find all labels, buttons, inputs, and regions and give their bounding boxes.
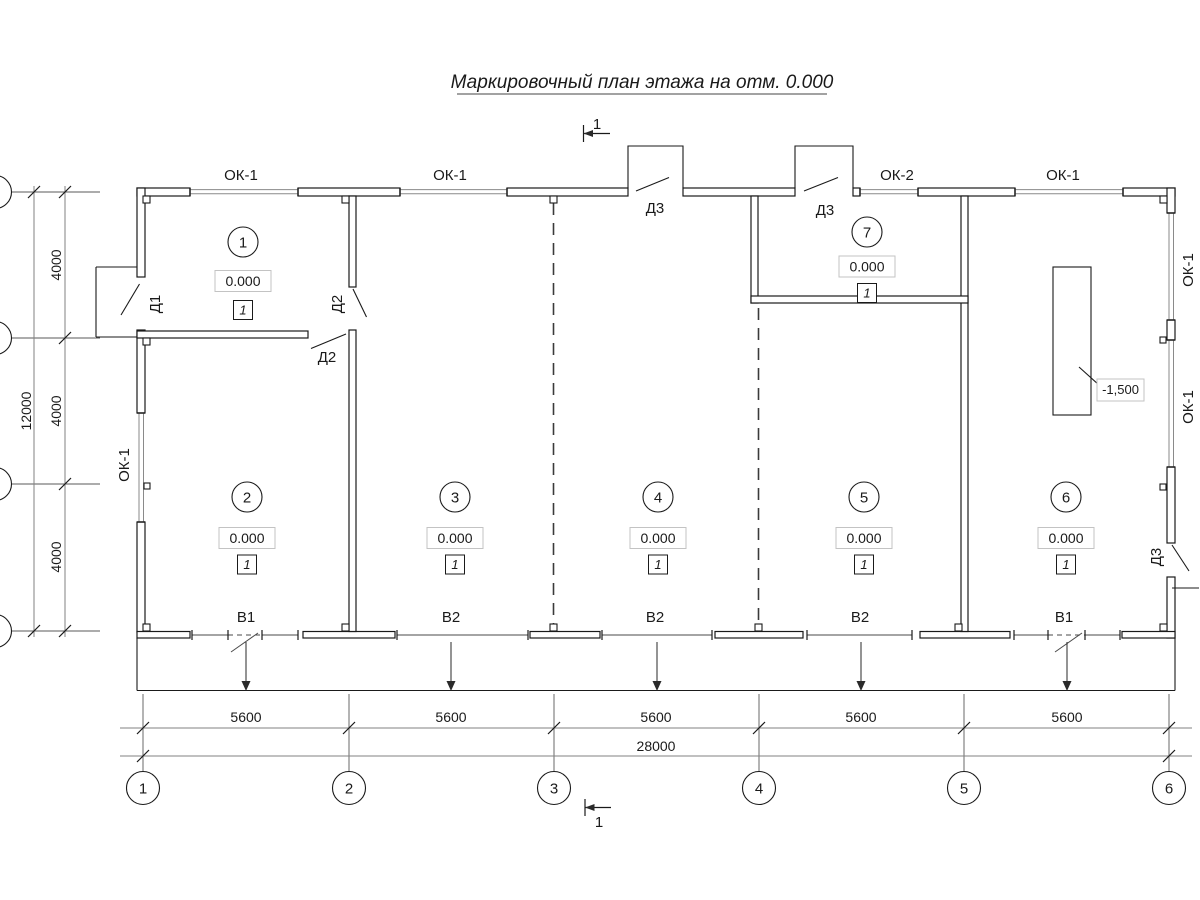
room-number: 4 — [654, 490, 662, 507]
room-elevation: 0.000 — [225, 273, 260, 289]
room-number: 5 — [860, 490, 868, 507]
window-label-ok1-right1: ОК-1 — [1180, 253, 1197, 287]
window-label-ok1-top1: ОК-1 — [224, 167, 258, 184]
bottom-pier — [137, 632, 190, 639]
wall-room1-room2 — [137, 331, 308, 338]
section-number-bottom: 1 — [595, 814, 603, 831]
room-finish-type: 1 — [451, 557, 458, 572]
top-wall-segment — [507, 188, 628, 196]
right-wall-segment — [1167, 320, 1175, 340]
room-number: 1 — [239, 235, 247, 252]
room-finish-type: 1 — [243, 557, 250, 572]
room-elevation: 0.000 — [640, 530, 675, 546]
window-ok2-top — [860, 188, 918, 196]
drawing-title: Маркировочный план этажа на отм. 0.000 — [451, 72, 834, 93]
bottom-pier — [1122, 632, 1175, 639]
row-bubble-d — [0, 615, 12, 648]
room-finish-type: 1 — [863, 286, 870, 301]
door-d2-upper-swing — [353, 289, 367, 317]
row-bubble-c — [0, 468, 12, 501]
room-number: 2 — [243, 490, 251, 507]
column-mark — [342, 624, 349, 631]
window-label-ok2-top: ОК-2 — [880, 167, 914, 184]
column-mark — [955, 624, 962, 631]
dim-left-bay3: 4000 — [48, 541, 64, 572]
dim-bay3: 5600 — [640, 709, 671, 725]
wall-room1-room3-lower — [349, 330, 356, 632]
dim-bay1: 5600 — [230, 709, 261, 725]
gate-label-v2-bay2: В2 — [442, 609, 460, 626]
floor-plan-drawing: Маркировочный план этажа на отм. 0.000 1… — [0, 0, 1200, 900]
row-bubble-a — [0, 176, 12, 209]
vestibule-1 — [628, 146, 683, 188]
column-mark — [143, 196, 150, 203]
door-d3-vest2-swing — [804, 178, 838, 192]
door-label-d2-upper: Д2 — [329, 295, 346, 314]
window-ok1-top-bay2 — [400, 188, 507, 196]
gate-label-v2-bay4: В2 — [851, 609, 869, 626]
door-d2-lower-swing — [311, 334, 346, 349]
column-mark — [550, 196, 557, 203]
floor-plan-canvas: Маркировочный план этажа на отм. 0.000 1… — [0, 0, 1200, 900]
vestibule-2 — [795, 146, 853, 188]
room-marker-2: 2 0.000 1 — [219, 482, 275, 574]
pit-elevation-label: -1,500 — [1102, 382, 1139, 397]
door-label-d3-side: Д3 — [1148, 548, 1165, 567]
room-elevation: 0.000 — [1048, 530, 1083, 546]
room-number: 6 — [1062, 490, 1070, 507]
gate-v2-bay4 — [807, 630, 912, 640]
right-wall-segment — [1167, 467, 1175, 543]
room-elevation: 0.000 — [229, 530, 264, 546]
column-mark — [755, 624, 762, 631]
room-marker-7: 7 0.000 1 — [839, 217, 895, 303]
dim-total: 28000 — [637, 738, 676, 754]
window-latch-mark — [1160, 337, 1166, 343]
door-label-d3-vest2: Д3 — [816, 202, 835, 219]
window-ok1-left — [137, 413, 145, 522]
gate-arrows — [242, 642, 1072, 691]
window-label-ok1-right2: ОК-1 — [1180, 390, 1197, 424]
bottom-dimensions: 5600 5600 5600 5600 5600 28000 1 2 3 4 5… — [120, 694, 1192, 805]
grid-bubble-5-label: 5 — [960, 781, 968, 798]
room-number: 3 — [451, 490, 459, 507]
left-dimensions: 4000 4000 4000 12000 — [0, 176, 100, 648]
pit-ramp: -1,500 — [1053, 267, 1144, 415]
section-number-top: 1 — [593, 116, 601, 133]
wall-room1-room3-upper — [349, 196, 356, 287]
door-label-d1: Д1 — [147, 295, 164, 314]
room-marker-6: 6 0.000 1 — [1038, 482, 1094, 574]
top-wall-segment — [853, 188, 860, 196]
gate-label-v2-bay3: В2 — [646, 609, 664, 626]
column-mark — [1160, 624, 1167, 631]
door-label-d2-lower: Д2 — [318, 349, 337, 366]
grid-bubble-1-label: 1 — [139, 781, 147, 798]
column-mark — [1160, 196, 1167, 203]
room-marker-4: 4 0.000 1 — [630, 482, 686, 574]
gate-label-v1-bay5: В1 — [1055, 609, 1073, 626]
window-ok1-top-bay5 — [1015, 188, 1123, 196]
gate-v2-bay3 — [602, 630, 712, 640]
gate-label-v1-bay1: В1 — [237, 609, 255, 626]
wall-room7-left — [751, 196, 758, 303]
window-label-ok1-left: ОК-1 — [116, 448, 133, 482]
grid-bubble-2-label: 2 — [345, 781, 353, 798]
column-mark — [342, 196, 349, 203]
window-ok1-right-upper — [1167, 213, 1175, 320]
dim-left-total: 12000 — [18, 391, 34, 430]
bottom-pier — [530, 632, 600, 639]
dim-bay2: 5600 — [435, 709, 466, 725]
dim-bay4: 5600 — [845, 709, 876, 725]
top-wall-segment — [683, 188, 795, 196]
gate-v1-bay1 — [192, 630, 298, 652]
column-mark — [143, 338, 150, 345]
grid-bubble-3-label: 3 — [550, 781, 558, 798]
window-label-ok1-top3: ОК-1 — [1046, 167, 1080, 184]
room-elevation: 0.000 — [437, 530, 472, 546]
window-latch-mark — [1160, 484, 1166, 490]
window-latch-mark — [144, 483, 150, 489]
dim-left-bay2: 4000 — [48, 395, 64, 426]
porch-left — [96, 267, 137, 337]
gate-v2-bay2 — [397, 630, 528, 640]
section-mark-bottom: 1 — [585, 799, 611, 831]
right-wall-segment — [1167, 188, 1175, 213]
grid-bubble-6-label: 6 — [1165, 781, 1173, 798]
door-d1-swing — [121, 284, 140, 315]
window-ok1-top-bay1 — [190, 188, 298, 196]
room-number: 7 — [863, 225, 871, 242]
column-mark — [143, 624, 150, 631]
section-mark-top: 1 — [584, 116, 611, 142]
grid-bubble-4-label: 4 — [755, 781, 763, 798]
bottom-pier — [715, 632, 803, 639]
room-marker-3: 3 0.000 1 — [427, 482, 483, 574]
dim-bay5: 5600 — [1051, 709, 1082, 725]
door-d3-vest1-swing — [636, 178, 669, 192]
top-wall-segment — [298, 188, 400, 196]
room-finish-type: 1 — [860, 557, 867, 572]
row-bubble-b — [0, 322, 12, 355]
room-elevation: 0.000 — [849, 259, 884, 275]
top-wall-segment — [918, 188, 1015, 196]
column-mark — [550, 624, 557, 631]
room-elevation: 0.000 — [846, 530, 881, 546]
room-finish-type: 1 — [1062, 557, 1069, 572]
window-label-ok1-top2: ОК-1 — [433, 167, 467, 184]
bottom-pier — [920, 632, 1010, 639]
room-marker-5: 5 0.000 1 — [836, 482, 892, 574]
wall-room5-room6 — [961, 196, 968, 632]
room-finish-type: 1 — [239, 303, 246, 318]
window-ok1-right-lower — [1167, 340, 1175, 467]
room-marker-1: 1 0.000 1 — [215, 227, 271, 320]
right-wall-segment — [1167, 577, 1175, 638]
dim-left-bay1: 4000 — [48, 249, 64, 280]
left-wall-segment — [137, 522, 145, 632]
door-d3-side-swing — [1172, 545, 1199, 588]
room-finish-type: 1 — [654, 557, 661, 572]
bottom-pier — [303, 632, 395, 639]
door-label-d3-vest1: Д3 — [646, 200, 665, 217]
